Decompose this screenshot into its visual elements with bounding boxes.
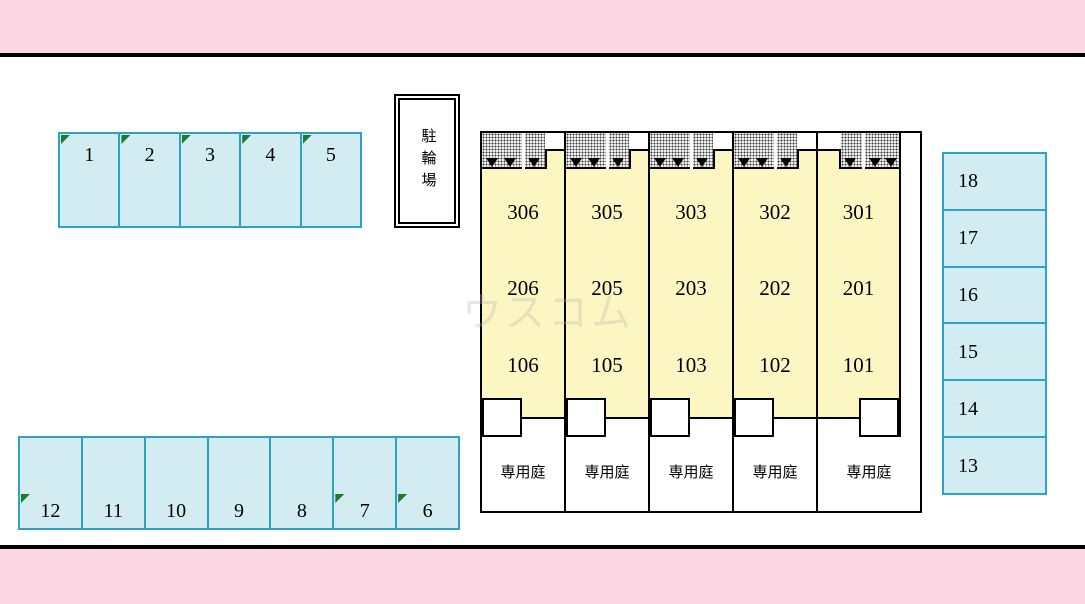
parking-space-label: 13 [958, 454, 978, 478]
parking-space-label: 11 [83, 499, 144, 523]
unit-number: 301 [818, 199, 899, 225]
parking-space-label: 17 [958, 226, 978, 250]
parking-space: 9 [209, 438, 272, 528]
door-triangle-icon [780, 158, 792, 167]
entrance-porch [566, 398, 606, 437]
door-triangle-icon [844, 158, 856, 167]
parking-space: 12 [20, 438, 83, 528]
parking-space-label: 12 [20, 499, 81, 523]
private-garden-label: 専用庭 [650, 463, 732, 483]
parking-space: 1 [60, 134, 120, 226]
parking-space: 17 [944, 211, 1045, 268]
parking-space: 4 [241, 134, 301, 226]
door-triangle-icon [612, 158, 624, 167]
balcony-step [818, 149, 841, 169]
private-garden-label: 専用庭 [482, 463, 564, 483]
unit-number: 106 [482, 352, 564, 378]
private-garden-label: 専用庭 [818, 463, 920, 483]
bicycle-parking-box: 駐輪場 [394, 94, 460, 228]
column-divider [648, 133, 650, 511]
parking-space-label: 2 [120, 134, 178, 167]
unit-number: 205 [566, 275, 648, 301]
top-border-line [0, 53, 1085, 57]
parking-space-label: 4 [241, 134, 299, 167]
parking-row-bottom: 12 11 10 9 8 7 6 [18, 436, 460, 530]
parking-row-top: 1 2 3 4 5 [58, 132, 362, 228]
top-pink-band [0, 0, 1085, 53]
parking-column-right: 18 17 16 15 14 13 [942, 152, 1047, 495]
door-triangle-icon [570, 158, 582, 167]
parking-space-label: 7 [334, 499, 395, 523]
hatch-gap [606, 133, 609, 166]
balcony-step [797, 149, 816, 169]
unit-number: 202 [734, 275, 816, 301]
door-triangle-icon [486, 158, 498, 167]
unit-number: 105 [566, 352, 648, 378]
private-garden-label: 専用庭 [566, 463, 648, 483]
balcony-step [713, 149, 732, 169]
door-triangle-icon [672, 158, 684, 167]
parking-space: 3 [181, 134, 241, 226]
parking-space-label: 9 [209, 499, 270, 523]
column-divider [816, 133, 818, 511]
parking-space-label: 5 [302, 134, 360, 167]
entrance-porch [482, 398, 522, 437]
door-triangle-icon [654, 158, 666, 167]
door-triangle-icon [696, 158, 708, 167]
door-triangle-icon [885, 158, 897, 167]
column-divider [564, 133, 566, 511]
parking-space: 7 [334, 438, 397, 528]
unit-number: 201 [818, 275, 899, 301]
hatch-gap [522, 133, 525, 166]
unit-number: 206 [482, 275, 564, 301]
entrance-porch [650, 398, 690, 437]
site-plan: 1 2 3 4 5 駐輪場 306 [0, 0, 1085, 604]
parking-space: 16 [944, 268, 1045, 325]
parking-space: 5 [302, 134, 360, 226]
balcony-step [545, 149, 564, 169]
parking-space: 2 [120, 134, 180, 226]
parking-space-label: 6 [397, 499, 458, 523]
door-triangle-icon [738, 158, 750, 167]
bottom-pink-band [0, 549, 1085, 604]
door-triangle-icon [528, 158, 540, 167]
parking-space: 14 [944, 381, 1045, 438]
door-triangle-icon [588, 158, 600, 167]
unit-number: 303 [650, 199, 732, 225]
door-triangle-icon [869, 158, 881, 167]
balcony-step [629, 149, 648, 169]
hatch-gap [862, 133, 865, 166]
bicycle-parking-label: 駐輪場 [420, 128, 435, 194]
parking-space: 8 [271, 438, 334, 528]
unit-number: 306 [482, 199, 564, 225]
column-divider [732, 133, 734, 511]
side-corridor [899, 133, 920, 437]
hatch-gap [690, 133, 693, 166]
parking-space-label: 14 [958, 397, 978, 421]
unit-number: 102 [734, 352, 816, 378]
parking-space: 11 [83, 438, 146, 528]
door-triangle-icon [756, 158, 768, 167]
parking-space-label: 15 [958, 340, 978, 364]
unit-number: 103 [650, 352, 732, 378]
entrance-porch [734, 398, 774, 437]
parking-space: 10 [146, 438, 209, 528]
bicycle-parking-inner-border: 駐輪場 [398, 98, 456, 224]
unit-number: 305 [566, 199, 648, 225]
private-garden-label: 専用庭 [734, 463, 816, 483]
parking-space: 6 [397, 438, 458, 528]
unit-number: 101 [818, 352, 899, 378]
parking-space-label: 10 [146, 499, 207, 523]
parking-space-label: 8 [271, 499, 332, 523]
parking-space-label: 1 [60, 134, 118, 167]
parking-space: 15 [944, 324, 1045, 381]
parking-space: 18 [944, 154, 1045, 211]
parking-space-label: 16 [958, 283, 978, 307]
parking-space: 13 [944, 438, 1045, 493]
entrance-porch [859, 398, 899, 437]
unit-number: 302 [734, 199, 816, 225]
hatch-gap [774, 133, 777, 166]
building-outline: 306 206 106 専用庭 305 205 105 専用庭 303 203 … [480, 131, 922, 513]
parking-space-label: 3 [181, 134, 239, 167]
unit-number: 203 [650, 275, 732, 301]
parking-space-label: 18 [958, 169, 978, 193]
door-triangle-icon [504, 158, 516, 167]
